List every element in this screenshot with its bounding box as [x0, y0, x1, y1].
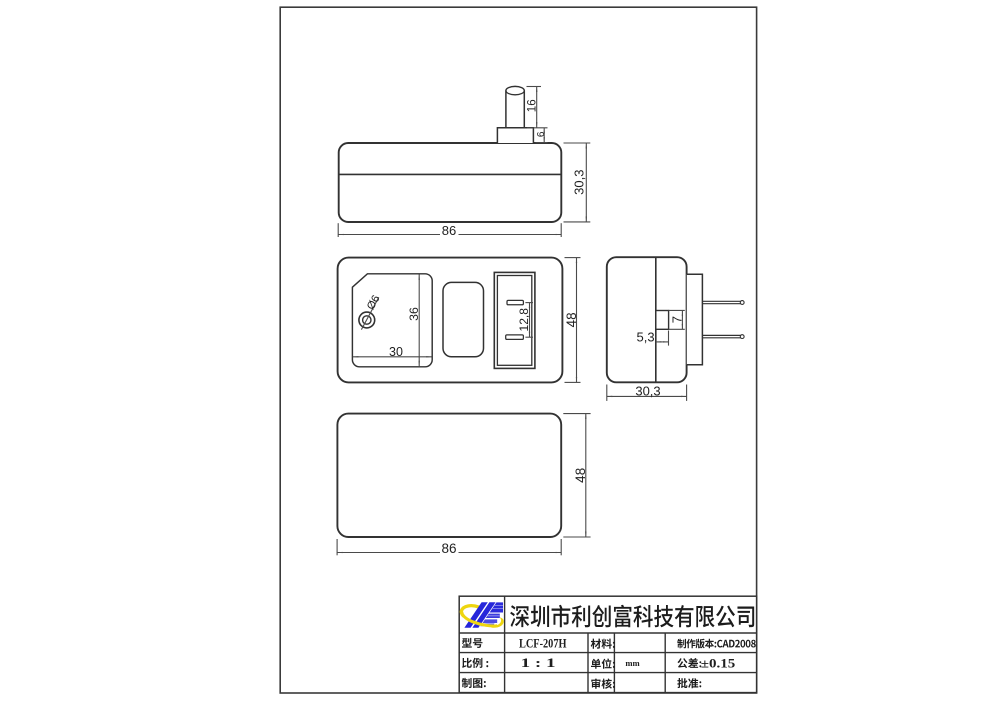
svg-text:5,3: 5,3	[637, 329, 655, 344]
svg-text:30: 30	[389, 345, 403, 359]
svg-text:30,3: 30,3	[635, 384, 660, 399]
svg-text:LCF-207H: LCF-207H	[519, 636, 567, 650]
svg-text:48: 48	[564, 312, 579, 327]
svg-text:6: 6	[536, 131, 547, 137]
svg-text:48: 48	[573, 468, 588, 483]
svg-text:86: 86	[441, 541, 456, 556]
svg-text:36: 36	[407, 307, 421, 321]
svg-text:12,8: 12,8	[517, 308, 531, 332]
svg-text:86: 86	[442, 223, 456, 238]
svg-text:16: 16	[527, 99, 539, 112]
svg-text:±0.15: ±0.15	[701, 655, 736, 670]
svg-text:1 : 1: 1 : 1	[521, 656, 556, 670]
svg-text:7: 7	[670, 316, 685, 323]
svg-text:mm: mm	[625, 658, 640, 668]
svg-text:30,3: 30,3	[572, 170, 587, 195]
